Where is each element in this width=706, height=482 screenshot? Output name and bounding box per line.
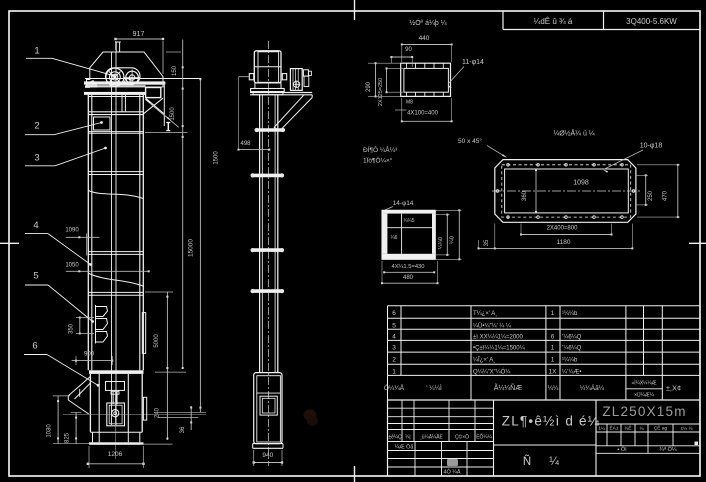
svg-text:¼’¼Æ•: ¼’¼Æ• xyxy=(562,370,581,376)
svg-text:ÈÕ¼¼: ÈÕ¼¼ xyxy=(476,433,492,440)
svg-text:50 x 45°: 50 x 45° xyxy=(458,137,482,145)
svg-text:¼ª Ô¼: ¼ª Ô¼ xyxy=(659,446,676,453)
svg-text:«Ì¼X¼¼Æ: «Ì¼X¼¼Æ xyxy=(631,379,656,386)
svg-text:1090: 1090 xyxy=(65,227,79,233)
svg-text:¼Î¿×’ A¸: ¼Î¿×’ A¸ xyxy=(473,356,495,363)
svg-text:Q¼¼”X”¼Ó¼: Q¼¼”X”¼Ó¼ xyxy=(473,369,511,376)
svg-text:ÐÍ¶Ô ¼Å¼³: ÐÍ¶Ô ¼Å¼³ xyxy=(363,145,398,154)
svg-text:¼0: ¼0 xyxy=(449,236,455,244)
svg-text:1030: 1030 xyxy=(46,424,52,438)
svg-text:×Ü¼Æ¼: ×Ü¼Æ¼ xyxy=(634,391,655,398)
svg-text:¼dÊ û ¾ á: ¼dÊ û ¾ á xyxy=(534,17,573,26)
svg-text:¼¼0: ¼¼0 xyxy=(438,237,444,249)
svg-text:¼6: ¼6 xyxy=(391,235,398,241)
svg-text:360: 360 xyxy=(522,190,528,201)
svg-text:±ì XX¼¼1¼=2000: ±ì XX¼¼1¼=2000 xyxy=(473,335,523,341)
svg-text:1: 1 xyxy=(551,356,555,363)
svg-text:Ó¼¼Å: Ó¼¼Å xyxy=(384,383,405,392)
svg-text:14-φ14: 14-φ14 xyxy=(393,200,414,207)
svg-text:4X¼1.5=430: 4X¼1.5=430 xyxy=(391,264,424,270)
svg-text:5000: 5000 xyxy=(154,334,160,348)
svg-text:1¼: 1¼ xyxy=(598,425,606,431)
svg-text:3Q400-5.6KW: 3Q400-5.6KW xyxy=(626,17,677,26)
svg-text:Ñ: Ñ xyxy=(523,455,531,468)
svg-text:±ê¼Ç: ±ê¼Ç xyxy=(388,434,402,440)
svg-text:¹¼¼b: ¹¼¼b xyxy=(562,357,578,363)
svg-text:6: 6 xyxy=(551,333,555,340)
svg-text:½Óº á¼þ ¼: ½Óº á¼þ ¼ xyxy=(409,18,446,27)
svg-text:¼Ü•¼”¼’ ¼ ¼: ¼Ü•¼”¼’ ¼ ¼ xyxy=(473,323,512,330)
svg-text:900: 900 xyxy=(84,351,95,357)
svg-text:250: 250 xyxy=(648,190,654,201)
svg-text:917: 917 xyxy=(133,31,145,38)
svg-text:¼Ê: ¼Ê xyxy=(624,423,631,431)
svg-text:1180: 1180 xyxy=(557,239,571,246)
svg-text:3: 3 xyxy=(34,152,39,163)
svg-text:• Ôì: • Ôì xyxy=(617,446,627,453)
svg-text:Ç©×Ö: Ç©×Ö xyxy=(455,433,469,440)
svg-text:’¼6¼Q: ’¼6¼Q xyxy=(562,335,582,341)
svg-text:¼¦: ¼¦ xyxy=(405,434,410,440)
svg-text:1206: 1206 xyxy=(108,451,123,458)
svg-text:150: 150 xyxy=(172,65,178,76)
svg-text:4Ó ¼Ä: 4Ó ¼Ä xyxy=(443,468,460,475)
svg-text:498: 498 xyxy=(240,141,251,147)
svg-text:ÊÀ±: ÊÀ± xyxy=(609,423,618,431)
svg-text:6: 6 xyxy=(32,340,37,351)
svg-text:5: 5 xyxy=(392,322,396,329)
svg-text:2X125=250: 2X125=250 xyxy=(378,78,384,106)
svg-text:15000: 15000 xyxy=(187,239,194,257)
svg-text:290: 290 xyxy=(366,81,372,92)
svg-text:3: 3 xyxy=(392,345,396,352)
svg-text:1: 1 xyxy=(34,46,39,57)
svg-text:2: 2 xyxy=(34,120,39,131)
svg-text:480: 480 xyxy=(403,275,414,281)
svg-text:470: 470 xyxy=(662,190,668,201)
svg-text:1: 1 xyxy=(392,368,396,375)
svg-text:•Ç±ì¼¼1¼=1500¼: •Ç±ì¼¼1¼=1500¼ xyxy=(473,346,526,352)
svg-text:ÇÊ ag: ÇÊ ag xyxy=(654,423,668,431)
svg-text:440: 440 xyxy=(419,35,430,42)
svg-text:2: 2 xyxy=(392,356,396,363)
svg-text:1098: 1098 xyxy=(573,179,589,186)
svg-text:¼: ¼ xyxy=(639,425,644,431)
svg-text:90: 90 xyxy=(405,47,412,53)
svg-text:4: 4 xyxy=(392,333,396,340)
svg-text:4X100=400: 4X100=400 xyxy=(407,110,439,116)
svg-text:¼Ø½Å¼ ú ¼: ¼Ø½Å¼ ú ¼ xyxy=(553,128,594,137)
svg-text:1: 1 xyxy=(551,310,555,317)
svg-text:1Ïò¶Ô¼×°: 1Ïò¶Ô¼×° xyxy=(363,156,393,165)
svg-text:36: 36 xyxy=(180,426,186,433)
svg-text:1: 1 xyxy=(551,345,555,352)
svg-text:4: 4 xyxy=(33,220,38,231)
svg-text:¼¼5: ¼¼5 xyxy=(403,218,414,224)
svg-text:¼¼Äã¼: ¼¼Äã¼ xyxy=(580,384,605,392)
svg-text:6: 6 xyxy=(392,310,396,317)
svg-text:±¼ ¼: ±¼ ¼ xyxy=(681,425,694,431)
svg-text:1500: 1500 xyxy=(213,151,219,165)
svg-text:¹¼¼b: ¹¼¼b xyxy=(562,311,578,317)
svg-text:Ã¼¼ÑÆ: Ã¼¼ÑÆ xyxy=(494,383,522,392)
svg-text:350: 350 xyxy=(68,323,74,334)
svg-text:ZL¶•ê½ì d é¼: ZL¶•ê½ì d é¼ xyxy=(502,413,600,428)
svg-text:M8: M8 xyxy=(406,100,413,106)
svg-text:T¼¿×’ A¸: T¼¿×’ A¸ xyxy=(473,311,497,317)
svg-text:5: 5 xyxy=(33,270,38,281)
svg-text:’¼6¼Q: ’¼6¼Q xyxy=(562,346,582,352)
svg-text:’ ¼¼Ì: ’ ¼¼Ì xyxy=(426,383,442,392)
svg-text:240: 240 xyxy=(154,407,160,418)
svg-text:940: 940 xyxy=(262,452,273,459)
svg-text:35: 35 xyxy=(484,239,490,246)
svg-text:¼Æ Öã: ¼Æ Öã xyxy=(395,443,415,450)
svg-text:11-φ14: 11-φ14 xyxy=(462,59,484,66)
svg-text:¼: ¼ xyxy=(549,456,559,468)
svg-text:±,X¢: ±,X¢ xyxy=(666,383,681,392)
svg-text:¸ü¼Ä¼ÄÈ: ¸ü¼Ä¼ÄÈ xyxy=(420,433,443,440)
svg-text:10-φ18: 10-φ18 xyxy=(640,142,663,149)
svg-text:1X: 1X xyxy=(549,368,558,375)
svg-text:ZL250X15m: ZL250X15m xyxy=(602,404,686,419)
svg-text:2X400=800: 2X400=800 xyxy=(547,225,579,231)
svg-text:1500: 1500 xyxy=(170,107,176,121)
svg-text:825: 825 xyxy=(64,432,70,443)
svg-text:1050: 1050 xyxy=(65,262,79,268)
svg-text:¼¼: ¼¼ xyxy=(548,385,559,392)
